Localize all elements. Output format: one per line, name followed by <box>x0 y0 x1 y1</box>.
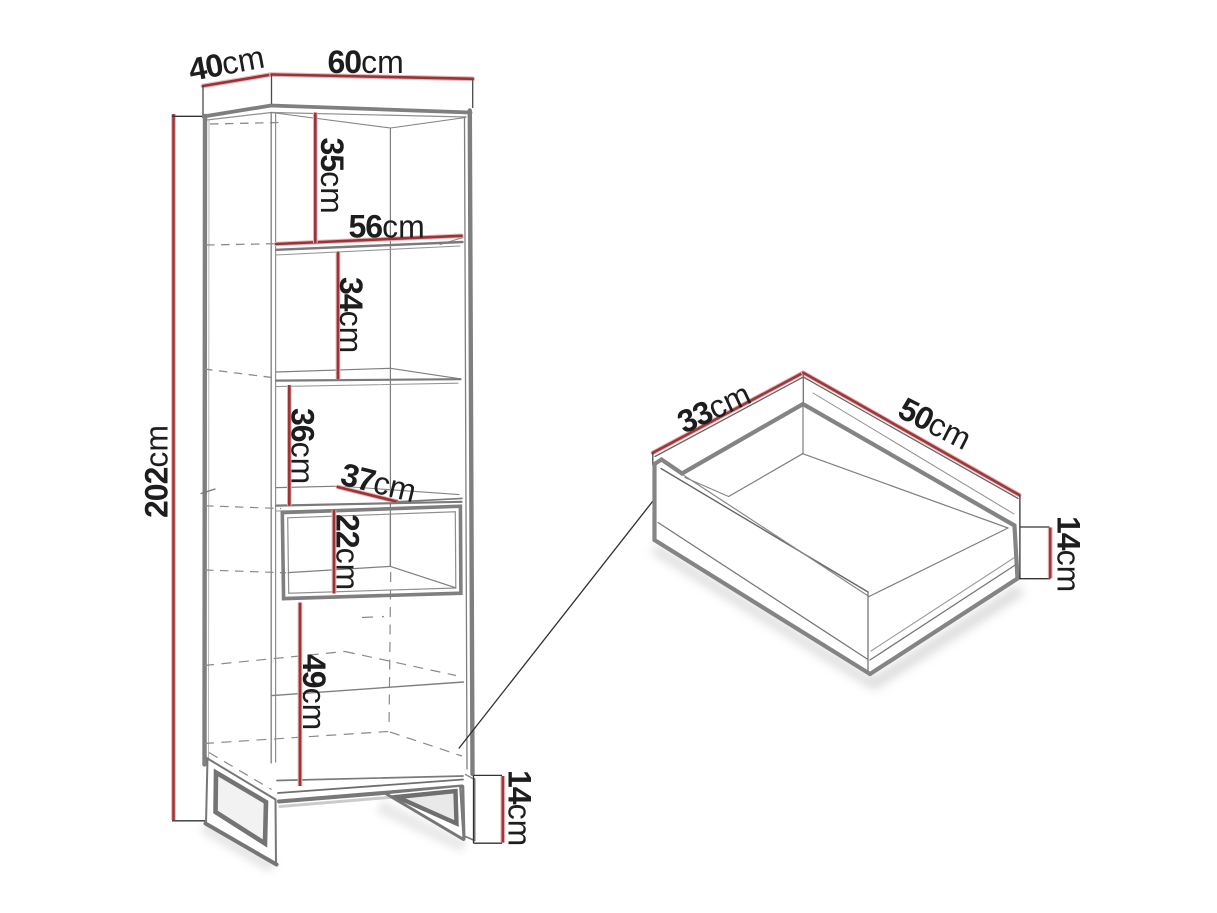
svg-text:35cm: 35cm <box>314 138 350 214</box>
svg-text:56cm: 56cm <box>349 209 425 245</box>
svg-text:36cm: 36cm <box>285 408 321 484</box>
svg-text:22cm: 22cm <box>330 514 366 590</box>
svg-text:49cm: 49cm <box>296 654 332 730</box>
svg-text:14cm: 14cm <box>1051 516 1087 592</box>
svg-text:14cm: 14cm <box>502 770 538 846</box>
svg-text:60cm: 60cm <box>328 44 404 80</box>
svg-text:202cm: 202cm <box>139 425 175 518</box>
svg-text:34cm: 34cm <box>333 277 369 353</box>
